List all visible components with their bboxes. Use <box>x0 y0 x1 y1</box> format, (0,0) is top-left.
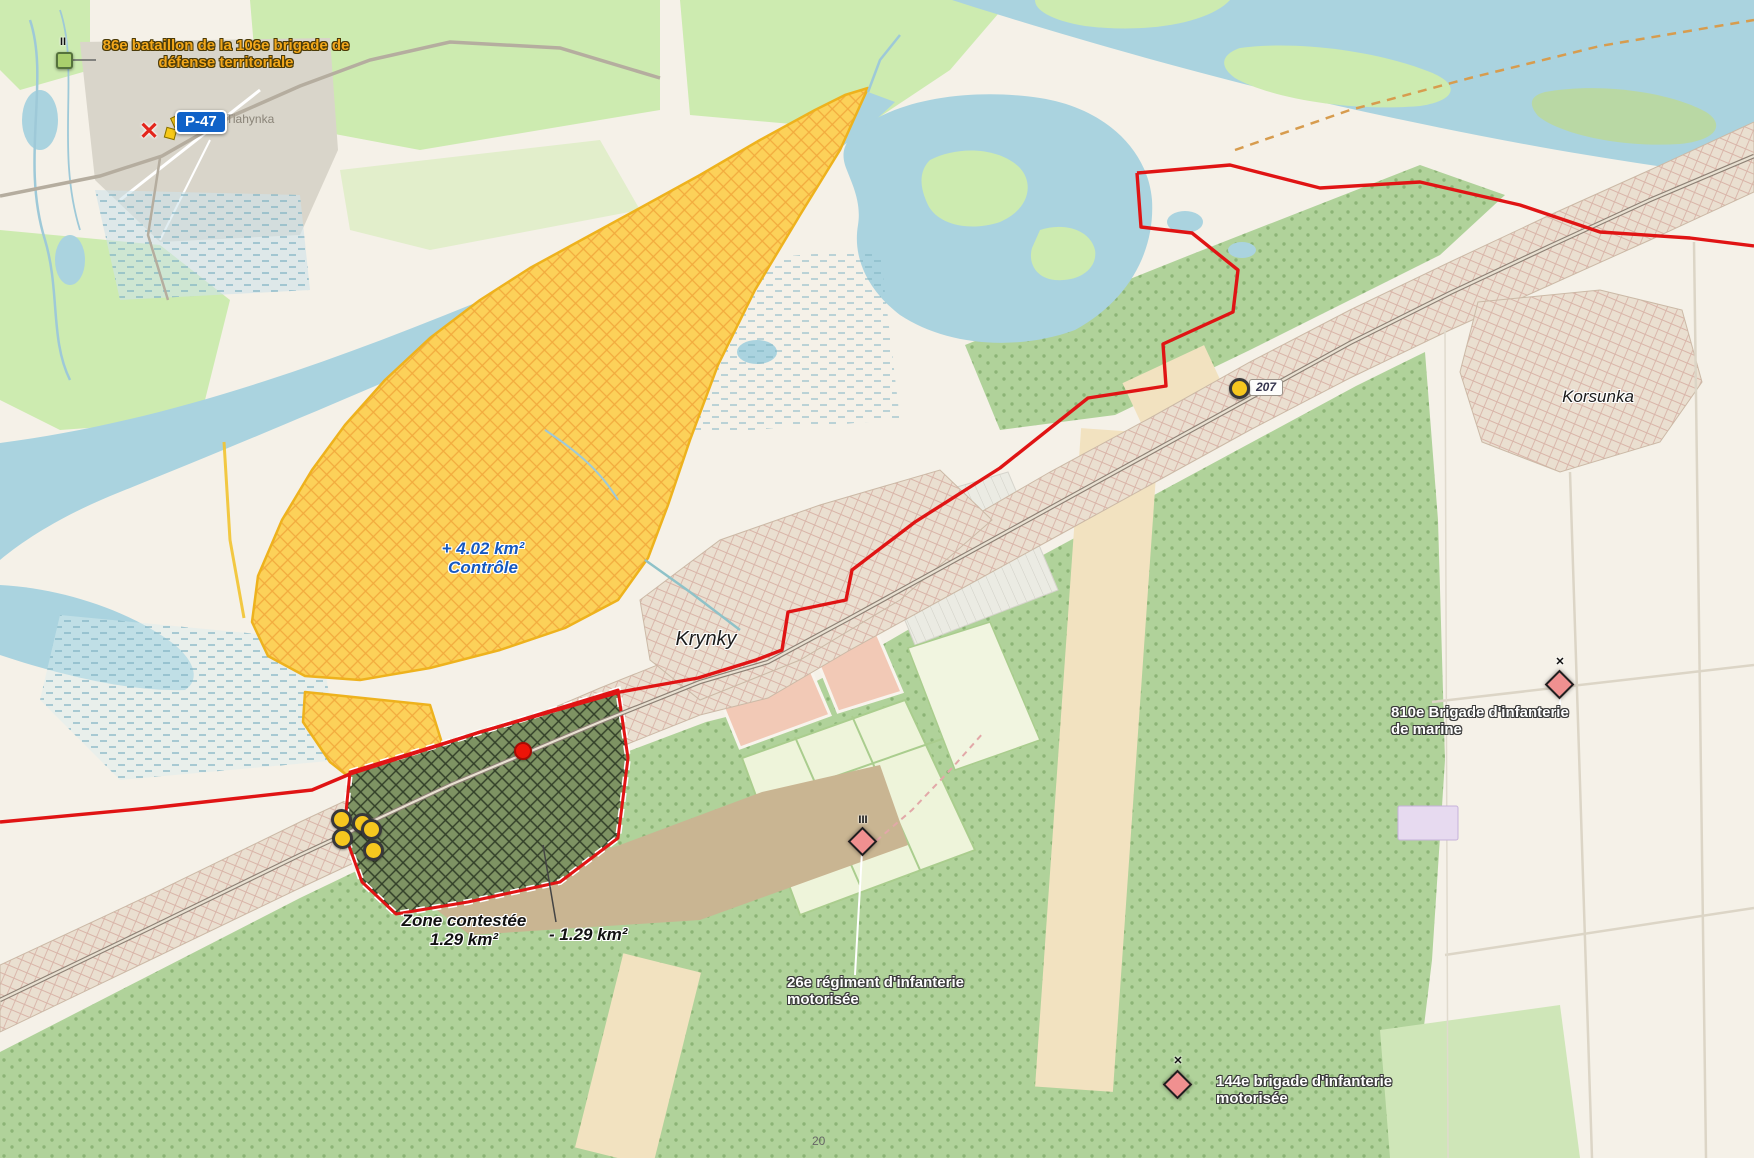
echelon-86e: II <box>60 36 66 48</box>
town-label-tiahynka: Tiahynka <box>226 112 274 126</box>
event-dot-4[interactable] <box>361 819 382 840</box>
road-badge-207[interactable]: 207 <box>1249 379 1283 396</box>
event-dot-red[interactable] <box>514 742 532 760</box>
control-zone-annotation: + 4.02 km² Contrôle <box>403 539 563 577</box>
town-label-korsunka: Korsunka <box>1548 387 1648 407</box>
unit-label-26e-line2: motorisée <box>787 991 964 1008</box>
contested-zone-name: Zone contestée <box>378 911 550 930</box>
unit-label-810e-line1: 810e Brigade d'infanterie <box>1391 704 1569 721</box>
unit-label-86e-line1: 86e bataillon de la 106e brigade de <box>90 37 362 54</box>
parcel-number-label: 20 <box>812 1134 825 1148</box>
echelon-26e: III <box>858 814 867 826</box>
road-badge-p47[interactable]: P-47 <box>175 110 227 134</box>
unit-label-86e-line2: défense territoriale <box>90 54 362 71</box>
unit-marker-86e-icon[interactable] <box>56 52 73 69</box>
contested-zone-value: 1.29 km² <box>378 930 550 949</box>
unit-label-810e-line2: de marine <box>1391 721 1569 738</box>
contested-zone-annotation: Zone contestée 1.29 km² <box>378 911 550 949</box>
loss-annotation: - 1.29 km² <box>549 925 627 944</box>
control-zone-value: + 4.02 km² <box>403 539 563 558</box>
unit-label-26e-line1: 26e régiment d'infanterie <box>787 974 964 991</box>
unit-label-86e: 86e bataillon de la 106e brigade de défe… <box>90 37 362 71</box>
unit-label-144e-line1: 144e brigade d'infanterie <box>1216 1073 1392 1090</box>
event-dot-6[interactable] <box>1229 378 1250 399</box>
unit-label-810e: 810e Brigade d'infanterie de marine <box>1391 704 1569 738</box>
echelon-144e: ✕ <box>1173 1054 1182 1067</box>
event-dot-5[interactable] <box>363 840 384 861</box>
unit-label-144e: 144e brigade d'infanterie motorisée <box>1216 1073 1392 1107</box>
map-canvas[interactable]: II 86e bataillon de la 106e brigade de d… <box>0 0 1754 1158</box>
event-dot-2[interactable] <box>332 828 353 849</box>
town-label-krynky: Krynky <box>650 628 762 651</box>
unit-label-144e-line2: motorisée <box>1216 1090 1392 1107</box>
event-dot-1[interactable] <box>331 809 352 830</box>
echelon-810e: ✕ <box>1555 655 1564 668</box>
unit-label-26e: 26e régiment d'infanterie motorisée <box>787 974 964 1008</box>
front-x-icon: ✕ <box>139 122 159 142</box>
control-zone-name: Contrôle <box>403 558 563 577</box>
